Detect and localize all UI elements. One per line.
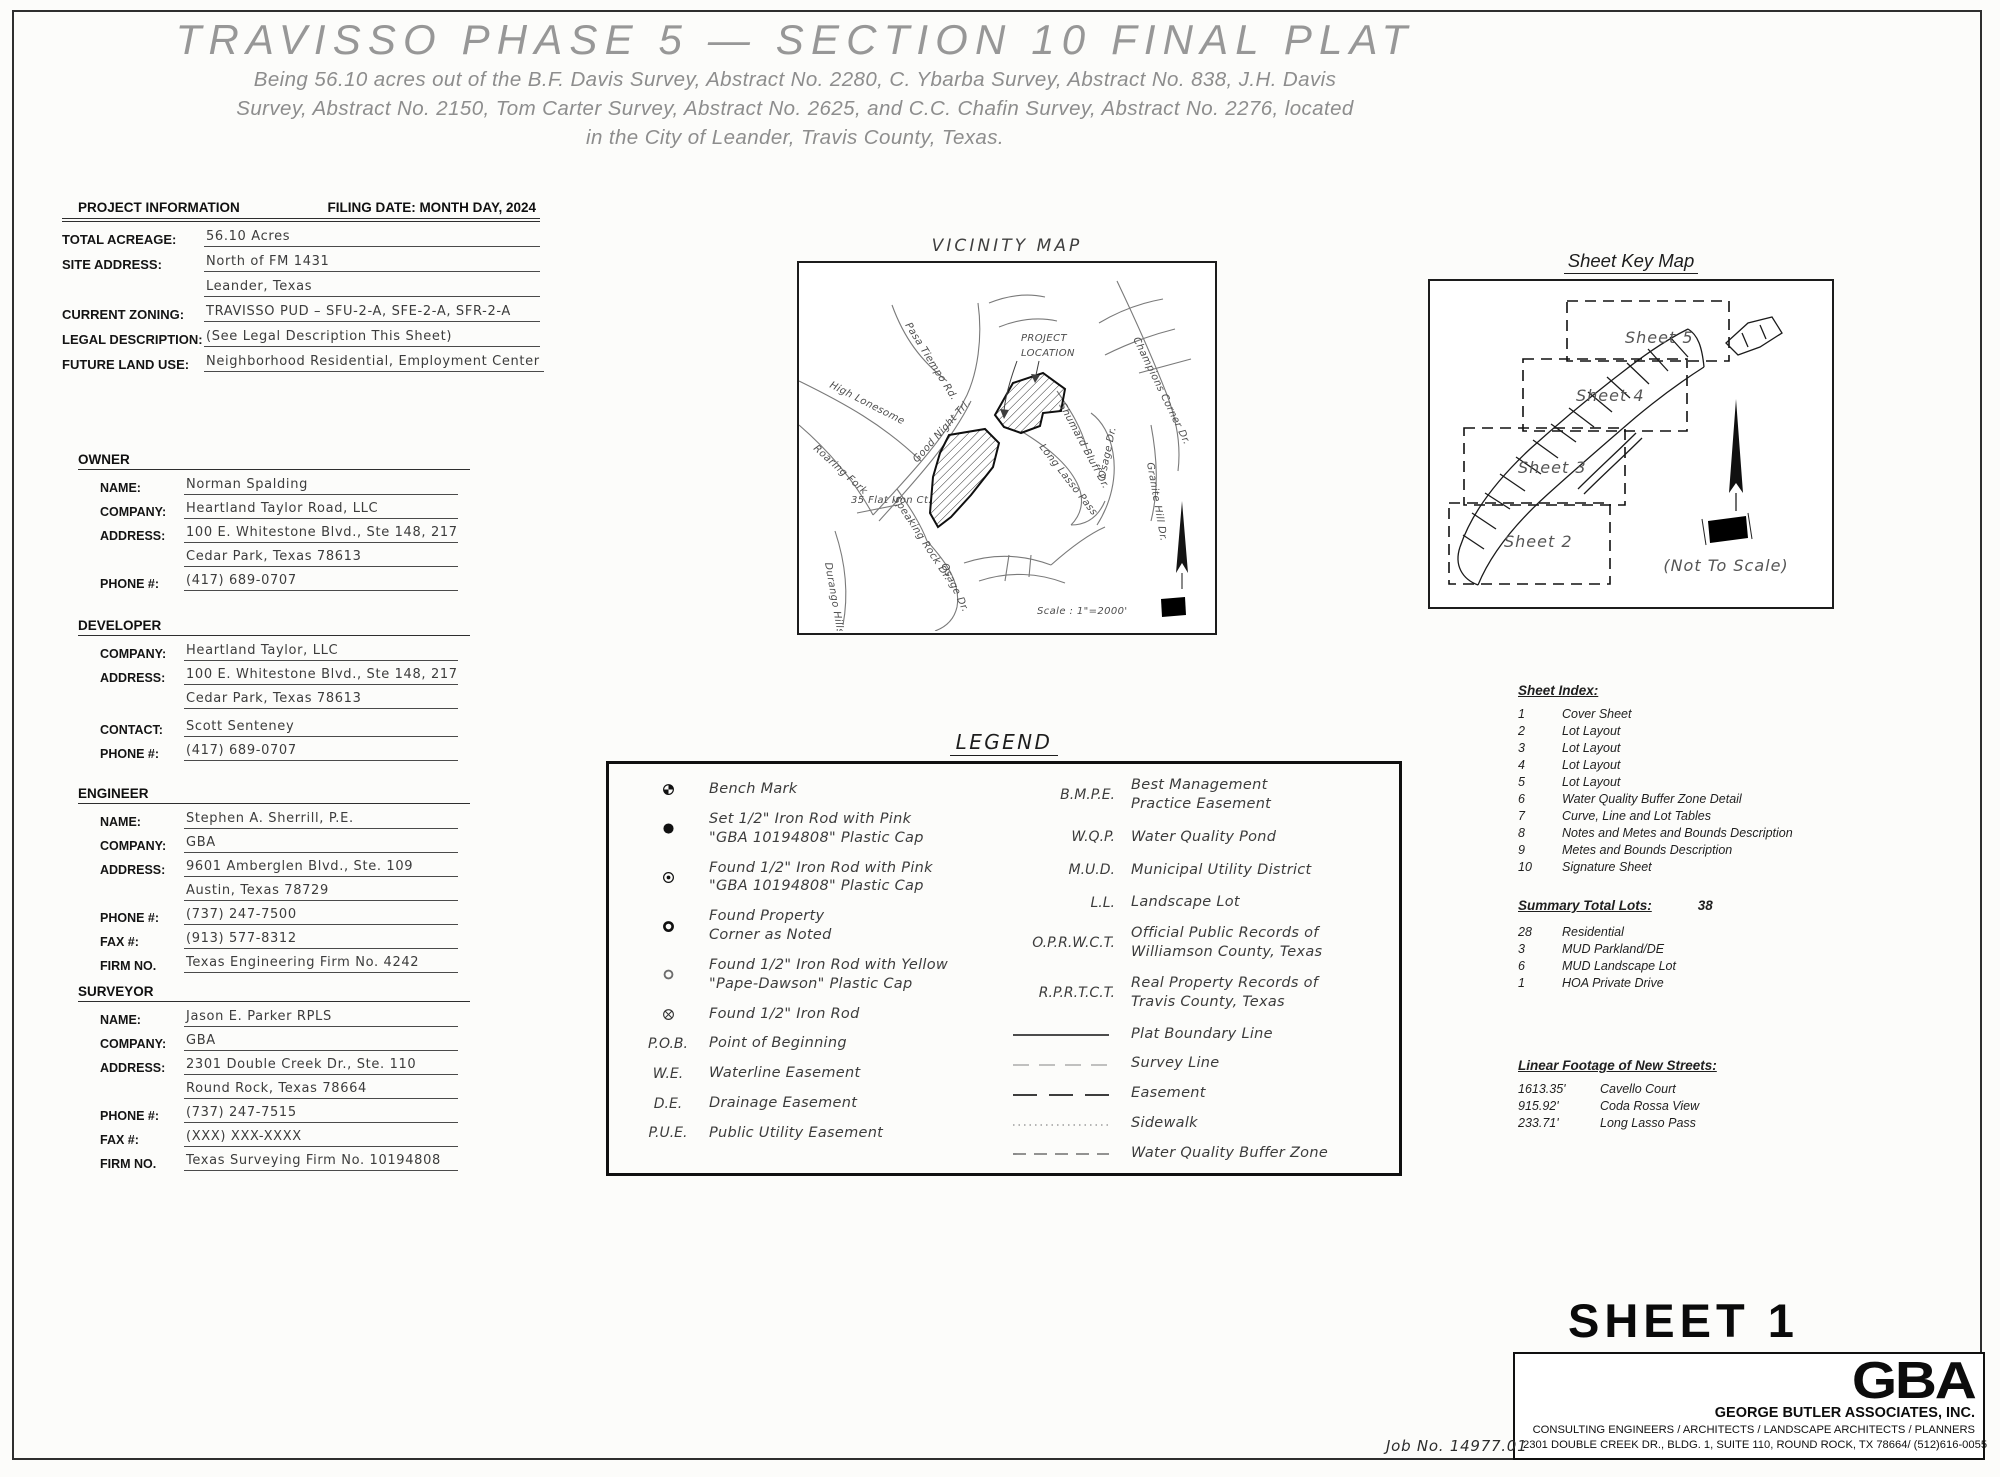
summary-row: 6MUD Landscape Lot <box>1518 959 1898 973</box>
field-row-total-acreage: TOTAL ACREAGE: 56.10 Acres <box>62 229 540 247</box>
sheet-key-label-2: Sheet 2 <box>1504 532 1573 551</box>
road-label: Roaring Fork <box>811 443 870 498</box>
vicinity-map-title: VICINITY MAP <box>797 236 1217 256</box>
sheet-key-label-3: Sheet 3 <box>1518 458 1587 477</box>
scale-label: Scale : 1"=2000' <box>1037 606 1128 617</box>
legend-item: P.O.B. Point of Beginning <box>627 1034 999 1053</box>
engineer-address-2: Austin, Texas 78729 <box>100 883 482 901</box>
legend-left-column: Bench Mark Set 1/2" Iron Rod with Pink"G… <box>627 780 999 1154</box>
legend-box: Bench Mark Set 1/2" Iron Rod with Pink"G… <box>606 761 1402 1176</box>
firm-address-line: 2301 DOUBLE CREEK DR., BLDG. 1, SUITE 11… <box>1523 1439 1975 1451</box>
vicinity-map-drawing: PROJECT LOCATION High Lonesome Pasa Tiem… <box>799 263 1213 631</box>
owner-block: OWNER NAME:Norman Spalding COMPANY:Heart… <box>62 452 482 591</box>
field-row-zoning: CURRENT ZONING: TRAVISSO PUD – SFU-2-A, … <box>62 304 540 322</box>
north-arrow-icon <box>1176 501 1188 589</box>
surveyor-heading: SURVEYOR <box>78 984 470 1002</box>
engineer-phone: PHONE #:(737) 247-7500 <box>100 907 482 925</box>
road-label: Pasa Tiempo Rd. <box>902 321 959 403</box>
engineer-firm: FIRM NO.Texas Engineering Firm No. 4242 <box>100 955 482 973</box>
linear-footage-heading: Linear Footage of New Streets: <box>1518 1058 1898 1073</box>
developer-block: DEVELOPER COMPANY:Heartland Taylor, LLC … <box>62 618 482 761</box>
sidewalk-line-icon <box>1011 1115 1131 1133</box>
developer-phone: PHONE #:(417) 689-0707 <box>100 743 482 761</box>
survey-line-icon <box>1011 1055 1131 1073</box>
summary-heading: Summary Total Lots: <box>1518 898 1652 913</box>
legend-item: Found 1/2" Iron Rod with Pink"GBA 101948… <box>627 859 999 897</box>
sheet-number-label: SHEET 1 <box>1568 1293 1799 1348</box>
legend-item: Found PropertyCorner as Noted <box>627 907 999 945</box>
legend-item: L.L. Landscape Lot <box>1011 893 1393 912</box>
legend: LEGEND Bench Mark Set 1/2" Iron Rod with… <box>606 730 1402 1176</box>
owner-address: ADDRESS:100 E. Whitestone Blvd., Ste 148… <box>100 525 482 543</box>
plat-boundary-line-icon <box>1011 1025 1131 1043</box>
firm-title-block: GBA GEORGE BUTLER ASSOCIATES, INC. CONSU… <box>1513 1352 1985 1460</box>
road-label: High Lonesome <box>828 380 907 427</box>
legend-item: W.E. Waterline Easement <box>627 1064 999 1083</box>
sheet-key-map-title: Sheet Key Map <box>1564 250 1699 274</box>
found-property-corner-icon <box>627 919 709 934</box>
vicinity-map: VICINITY MAP <box>797 236 1217 635</box>
field-row-site-address: SITE ADDRESS: North of FM 1431 <box>62 254 540 272</box>
street-row: 233.71'Long Lasso Pass <box>1518 1116 1898 1130</box>
double-rule <box>62 221 540 222</box>
legend-item: M.U.D. Municipal Utility District <box>1011 861 1393 880</box>
owner-name: NAME:Norman Spalding <box>100 477 482 495</box>
sheet-key-map: Sheet Key Map <box>1428 250 1834 609</box>
not-to-scale-label: (Not To Scale) <box>1663 556 1788 575</box>
engineer-name: NAME:Stephen A. Sherrill, P.E. <box>100 811 482 829</box>
scale-bar-icon <box>1161 597 1186 617</box>
sheet-index-row: 4Lot Layout <box>1518 758 1898 772</box>
sheet-key-label-4: Sheet 4 <box>1576 386 1645 405</box>
water-quality-buffer-line-icon <box>1011 1144 1131 1162</box>
legend-item: Found 1/2" Iron Rod <box>627 1005 999 1024</box>
sheet-key-label-5: Sheet 5 <box>1625 328 1694 347</box>
engineer-heading: ENGINEER <box>78 786 470 804</box>
legend-item: Survey Line <box>1011 1054 1393 1073</box>
page-title: TRAVISSO PHASE 5 — SECTION 10 FINAL PLAT <box>80 16 1510 64</box>
project-location-label-2: LOCATION <box>1021 348 1075 359</box>
legend-item: B.M.P.E. Best ManagementPractice Easemen… <box>1011 776 1393 814</box>
subtitle-line-1: Being 56.10 acres out of the B.F. Davis … <box>80 66 1510 93</box>
subtitle-line-3: in the City of Leander, Travis County, T… <box>80 124 1510 151</box>
firm-services-line: CONSULTING ENGINEERS / ARCHITECTS / LAND… <box>1523 1424 1975 1436</box>
owner-heading: OWNER <box>78 452 470 470</box>
summary-total-lots: Summary Total Lots: 38 28Residential 3MU… <box>1518 898 1898 990</box>
surveyor-name: NAME:Jason E. Parker RPLS <box>100 1009 482 1027</box>
summary-row: 3MUD Parkland/DE <box>1518 942 1898 956</box>
legend-item: Water Quality Buffer Zone <box>1011 1144 1393 1163</box>
legend-item: Sidewalk <box>1011 1114 1393 1133</box>
legend-item: Set 1/2" Iron Rod with Pink"GBA 10194808… <box>627 810 999 848</box>
found-iron-rod-pink-icon <box>627 870 709 885</box>
linear-footage: Linear Footage of New Streets: 1613.35'C… <box>1518 1058 1898 1130</box>
sheet-key-map-box: Sheet 5 Sheet 4 Sheet 3 Sheet 2 (Not To … <box>1428 279 1834 609</box>
field-row-landuse: FUTURE LAND USE: Neighborhood Residentia… <box>62 354 540 372</box>
project-information-title: PROJECT INFORMATION <box>78 200 240 215</box>
legend-item: R.P.R.T.C.T. Real Property Records ofTra… <box>1011 974 1393 1012</box>
project-information-block: PROJECT INFORMATION FILING DATE: MONTH D… <box>62 200 540 372</box>
summary-total: 38 <box>1698 898 1713 913</box>
road-label: Champions Corner Dr. <box>1130 335 1192 446</box>
surveyor-company: COMPANY:GBA <box>100 1033 482 1051</box>
sheet-index-row: 3Lot Layout <box>1518 741 1898 755</box>
sheet-index-heading: Sheet Index: <box>1518 683 1898 698</box>
surveyor-address: ADDRESS:2301 Double Creek Dr., Ste. 110 <box>100 1057 482 1075</box>
sheet-key-map-drawing: Sheet 5 Sheet 4 Sheet 3 Sheet 2 (Not To … <box>1430 281 1832 607</box>
developer-contact: CONTACT:Scott Senteney <box>100 719 482 737</box>
job-number: Job No. 14977.01 <box>1386 1437 1527 1455</box>
summary-row: 1HOA Private Drive <box>1518 976 1898 990</box>
sheet-index-row: 8Notes and Metes and Bounds Description <box>1518 826 1898 840</box>
surveyor-phone: PHONE #:(737) 247-7515 <box>100 1105 482 1123</box>
sheet-index: Sheet Index: 1Cover Sheet 2Lot Layout 3L… <box>1518 683 1898 874</box>
legend-right-column: B.M.P.E. Best ManagementPractice Easemen… <box>1011 776 1393 1174</box>
surveyor-block: SURVEYOR NAME:Jason E. Parker RPLS COMPA… <box>62 984 482 1171</box>
vicinity-map-box: PROJECT LOCATION High Lonesome Pasa Tiem… <box>797 261 1217 635</box>
developer-address: ADDRESS:100 E. Whitestone Blvd., Ste 148… <box>100 667 482 685</box>
developer-heading: DEVELOPER <box>78 618 470 636</box>
street-row: 1613.35'Cavello Court <box>1518 1082 1898 1096</box>
surveyor-firm: FIRM NO.Texas Surveying Firm No. 1019480… <box>100 1153 482 1171</box>
project-information-header: PROJECT INFORMATION FILING DATE: MONTH D… <box>62 200 540 219</box>
field-row-site-address-2: Leander, Texas <box>62 279 540 297</box>
sheet-index-row: 5Lot Layout <box>1518 775 1898 789</box>
surveyor-address-2: Round Rock, Texas 78664 <box>100 1081 482 1099</box>
north-arrow-icon <box>1729 399 1743 511</box>
sheet-index-row: 1Cover Sheet <box>1518 707 1898 721</box>
surveyor-fax: FAX #:(XXX) XXX-XXXX <box>100 1129 482 1147</box>
legend-item: W.Q.P. Water Quality Pond <box>1011 828 1393 847</box>
sheet-index-row: 7Curve, Line and Lot Tables <box>1518 809 1898 823</box>
legend-title: LEGEND <box>950 730 1059 756</box>
legend-item: Easement <box>1011 1084 1393 1103</box>
engineer-fax: FAX #:(913) 577-8312 <box>100 931 482 949</box>
sheet-index-row: 6Water Quality Buffer Zone Detail <box>1518 792 1898 806</box>
filing-date: FILING DATE: MONTH DAY, 2024 <box>327 200 536 215</box>
found-iron-rod-yellow-icon <box>627 967 709 982</box>
bench-mark-icon <box>627 782 709 797</box>
engineer-address: ADDRESS:9601 Amberglen Blvd., Ste. 109 <box>100 859 482 877</box>
road-label: Osage Dr. <box>938 562 970 614</box>
developer-company: COMPANY:Heartland Taylor, LLC <box>100 643 482 661</box>
sheet-index-row: 9Metes and Bounds Description <box>1518 843 1898 857</box>
legend-item: Plat Boundary Line <box>1011 1025 1393 1044</box>
sheet-index-row: 10Signature Sheet <box>1518 860 1898 874</box>
street-row: 915.92'Coda Rossa View <box>1518 1099 1898 1113</box>
heading-block: TRAVISSO PHASE 5 — SECTION 10 FINAL PLAT… <box>80 16 1510 151</box>
road-label: Granite Hill Dr. <box>1144 462 1169 543</box>
set-iron-rod-icon <box>627 821 709 836</box>
plat-cover-sheet: TRAVISSO PHASE 5 — SECTION 10 FINAL PLAT… <box>0 0 2000 1477</box>
developer-address-2: Cedar Park, Texas 78613 <box>100 691 482 709</box>
legend-item: O.P.R.W.C.T. Official Public Records ofW… <box>1011 924 1393 962</box>
legend-item: Found 1/2" Iron Rod with Yellow"Pape-Daw… <box>627 956 999 994</box>
owner-address-2: Cedar Park, Texas 78613 <box>100 549 482 567</box>
owner-company: COMPANY:Heartland Taylor Road, LLC <box>100 501 482 519</box>
scale-bar-icon <box>1702 513 1752 545</box>
subtitle-line-2: Survey, Abstract No. 2150, Tom Carter Su… <box>80 95 1510 122</box>
legend-item: D.E. Drainage Easement <box>627 1094 999 1113</box>
owner-phone: PHONE #:(417) 689-0707 <box>100 573 482 591</box>
gba-logo: GBA <box>1852 1358 1975 1406</box>
project-location-label-1: PROJECT <box>1021 333 1067 344</box>
summary-row: 28Residential <box>1518 925 1898 939</box>
field-row-legal: LEGAL DESCRIPTION: (See Legal Descriptio… <box>62 329 540 347</box>
legend-item: Bench Mark <box>627 780 999 799</box>
legend-item: P.U.E. Public Utility Easement <box>627 1124 999 1143</box>
easement-line-icon <box>1011 1085 1131 1103</box>
engineer-company: COMPANY:GBA <box>100 835 482 853</box>
engineer-block: ENGINEER NAME:Stephen A. Sherrill, P.E. … <box>62 786 482 973</box>
found-iron-rod-icon <box>627 1007 709 1022</box>
sheet-index-row: 2Lot Layout <box>1518 724 1898 738</box>
